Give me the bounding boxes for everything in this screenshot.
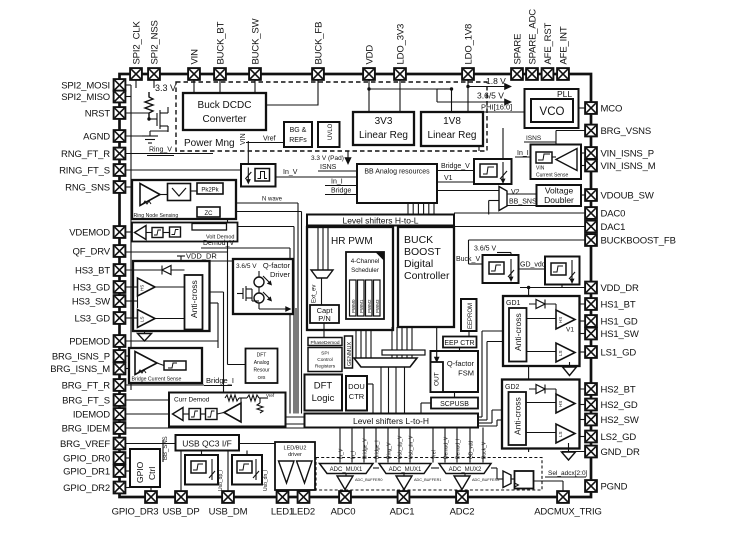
- svg-text:GPIO_DR1: GPIO_DR1: [63, 467, 110, 478]
- svg-text:BRG_VSNS: BRG_VSNS: [601, 126, 652, 137]
- svg-text:Usb_dp_V: Usb_dp_V: [398, 435, 404, 459]
- svg-text:HS1_SW: HS1_SW: [601, 329, 639, 340]
- svg-text:DFT: DFT: [314, 381, 333, 392]
- svg-text:GPIO_DR3: GPIO_DR3: [112, 507, 159, 518]
- svg-text:PWM3: PWM3: [375, 299, 380, 313]
- svg-text:DFT: DFT: [257, 353, 267, 359]
- svg-text:Bridge_I: Bridge_I: [206, 376, 234, 385]
- svg-text:PWM0: PWM0: [351, 299, 356, 313]
- svg-text:IDEMOD: IDEMOD: [73, 410, 110, 421]
- svg-text:SPI2_CLK: SPI2_CLK: [132, 21, 143, 65]
- svg-text:SPARE_ADC: SPARE_ADC: [528, 9, 539, 65]
- svg-text:AFE_INT: AFE_INT: [559, 26, 570, 64]
- svg-text:P/N: P/N: [318, 314, 331, 323]
- svg-text:Registers: Registers: [315, 364, 336, 370]
- svg-text:Buck_V: Buck_V: [456, 256, 480, 263]
- svg-text:MCO: MCO: [601, 104, 623, 115]
- svg-text:Bridge_I: Bridge_I: [375, 440, 381, 459]
- svg-text:GPIO_DR2: GPIO_DR2: [63, 483, 110, 494]
- svg-text:Q-factor: Q-factor: [263, 261, 291, 270]
- svg-text:3.6/5 V: 3.6/5 V: [474, 246, 497, 253]
- svg-text:RING_FT_S: RING_FT_S: [59, 166, 110, 177]
- svg-text:Voltage: Voltage: [545, 186, 574, 196]
- svg-text:Anti-cross: Anti-cross: [513, 313, 523, 351]
- svg-text:Pk2Pk: Pk2Pk: [201, 188, 219, 194]
- svg-text:HS2_SW: HS2_SW: [601, 415, 639, 426]
- svg-text:LED/BU2: LED/BU2: [284, 446, 307, 452]
- svg-text:PLL: PLL: [557, 89, 572, 99]
- svg-text:3V3: 3V3: [375, 116, 393, 127]
- svg-text:Anti-cross: Anti-cross: [189, 280, 199, 318]
- svg-text:Bridge Current Sense: Bridge Current Sense: [132, 377, 182, 383]
- svg-text:USB QC3 I/F: USB QC3 I/F: [182, 439, 232, 449]
- svg-text:DOU: DOU: [348, 382, 365, 391]
- svg-text:V1: V1: [566, 327, 574, 334]
- svg-text:LS2_GD: LS2_GD: [601, 432, 637, 443]
- svg-text:REFs: REFs: [289, 137, 307, 144]
- svg-text:BUCK_FB: BUCK_FB: [314, 22, 325, 65]
- svg-text:ADC_BUFFER0: ADC_BUFFER0: [355, 478, 382, 482]
- svg-text:BRG_ISNS_P: BRG_ISNS_P: [52, 352, 110, 363]
- svg-text:HS: HS: [558, 401, 563, 407]
- svg-text:ADC_BUFFER1: ADC_BUFFER1: [414, 478, 441, 482]
- svg-text:BUCK_SW: BUCK_SW: [251, 18, 262, 64]
- svg-text:LS: LS: [140, 316, 145, 322]
- svg-text:BUCKBOOST_FB: BUCKBOOST_FB: [601, 236, 676, 247]
- svg-text:driver: driver: [288, 452, 302, 458]
- svg-text:HS3_SW: HS3_SW: [72, 297, 110, 308]
- svg-text:Bridge_V: Bridge_V: [363, 438, 369, 459]
- svg-text:AFE_RST: AFE_RST: [543, 22, 554, 64]
- svg-text:VIN: VIN: [536, 166, 545, 172]
- svg-text:Scheduler: Scheduler: [351, 267, 379, 274]
- svg-text:BUCK: BUCK: [404, 234, 433, 246]
- svg-text:Curr Demod: Curr Demod: [174, 397, 210, 404]
- svg-text:PGND: PGND: [601, 482, 628, 493]
- svg-text:3.3 V (Pad): 3.3 V (Pad): [311, 155, 344, 162]
- svg-text:Demod_V: Demod_V: [203, 240, 234, 247]
- svg-text:Ctrl: Ctrl: [147, 467, 157, 480]
- svg-text:Buck_V: Buck_V: [482, 441, 488, 459]
- svg-text:BRG_FT_R: BRG_FT_R: [62, 381, 111, 392]
- svg-text:Controller: Controller: [404, 270, 450, 282]
- svg-text:VDEMOD: VDEMOD: [69, 228, 110, 239]
- svg-text:3.3 V: 3.3 V: [155, 83, 176, 93]
- svg-text:HS: HS: [558, 317, 563, 323]
- svg-text:ces: ces: [258, 375, 266, 381]
- svg-text:LDO_3V3: LDO_3V3: [396, 24, 407, 65]
- svg-text:SPI2_NSS: SPI2_NSS: [150, 20, 161, 64]
- svg-text:LS: LS: [558, 431, 563, 437]
- svg-text:4-Channel: 4-Channel: [351, 258, 380, 265]
- svg-text:Ring_V: Ring_V: [149, 147, 172, 154]
- svg-text:HS3_BT: HS3_BT: [75, 266, 110, 277]
- svg-text:Converter: Converter: [203, 114, 248, 125]
- svg-text:Ring_V: Ring_V: [387, 442, 393, 459]
- svg-text:Level shifters L-to-H: Level shifters L-to-H: [353, 416, 429, 426]
- svg-text:ADC0: ADC0: [331, 507, 356, 518]
- svg-text:1V8: 1V8: [443, 116, 461, 127]
- svg-text:In_I: In_I: [517, 150, 529, 157]
- svg-text:BRG_ISNS_M: BRG_ISNS_M: [50, 364, 110, 375]
- svg-text:FSM: FSM: [458, 369, 474, 378]
- svg-text:Demod_I: Demod_I: [456, 439, 462, 459]
- svg-text:EEP CTR: EEP CTR: [444, 340, 474, 347]
- svg-text:Ring Node Sensing: Ring Node Sensing: [134, 213, 179, 219]
- svg-text:USB_DM: USB_DM: [209, 507, 248, 518]
- svg-text:PhaseDemod: PhaseDemod: [310, 340, 339, 346]
- svg-text:Usb_dn_I: Usb_dn_I: [263, 470, 269, 491]
- svg-text:3.6/5 V: 3.6/5 V: [236, 263, 257, 270]
- svg-text:HS1_GD: HS1_GD: [601, 317, 638, 328]
- svg-text:LS1_GD: LS1_GD: [601, 348, 637, 359]
- svg-text:BUCK_BT: BUCK_BT: [216, 21, 227, 64]
- svg-text:HS2_GD: HS2_GD: [601, 400, 638, 411]
- svg-text:GENMUX: GENMUX: [347, 342, 353, 366]
- svg-text:RNG_FT_R: RNG_FT_R: [61, 149, 110, 160]
- svg-text:VDD_DR: VDD_DR: [601, 283, 639, 294]
- svg-text:GD_vdd: GD_vdd: [469, 440, 475, 459]
- svg-text:SPI: SPI: [321, 351, 329, 357]
- svg-text:LS3_GD: LS3_GD: [74, 314, 110, 325]
- svg-text:ADC_MUX2: ADC_MUX2: [449, 467, 482, 473]
- svg-text:N wave: N wave: [262, 197, 283, 203]
- svg-text:Driver: Driver: [270, 270, 291, 279]
- svg-text:LS: LS: [558, 350, 563, 356]
- svg-text:BOOST: BOOST: [404, 246, 441, 258]
- svg-text:Control: Control: [317, 357, 332, 363]
- svg-text:SPI2_MISO: SPI2_MISO: [61, 92, 110, 103]
- svg-text:HS: HS: [140, 285, 145, 291]
- svg-text:USB_DP: USB_DP: [162, 507, 199, 518]
- svg-text:Power Mng: Power Mng: [184, 138, 235, 149]
- svg-text:GD1: GD1: [506, 300, 521, 307]
- svg-text:DAC1: DAC1: [601, 222, 626, 233]
- svg-text:Buck DCDC: Buck DCDC: [198, 100, 252, 111]
- svg-text:Digital: Digital: [404, 258, 433, 270]
- svg-text:Current Sense: Current Sense: [536, 173, 568, 179]
- svg-text:Ext_ev: Ext_ev: [312, 285, 318, 303]
- svg-text:Doubler: Doubler: [544, 195, 574, 205]
- svg-text:GPIO_DR0: GPIO_DR0: [63, 454, 110, 465]
- svg-text:LED1: LED1: [271, 507, 294, 518]
- svg-text:Vref: Vref: [263, 136, 276, 143]
- svg-text:BRG_FT_S: BRG_FT_S: [62, 396, 110, 407]
- svg-text:PWM1: PWM1: [359, 299, 364, 313]
- svg-text:EEPROM: EEPROM: [468, 303, 474, 329]
- svg-text:Bridge_V: Bridge_V: [441, 163, 470, 170]
- svg-text:GPIO: GPIO: [135, 461, 145, 483]
- svg-text:3.6/5 V: 3.6/5 V: [477, 91, 504, 101]
- svg-text:PWM2: PWM2: [367, 299, 372, 313]
- svg-text:VCO: VCO: [540, 106, 565, 118]
- svg-text:ADC_MUX1: ADC_MUX1: [330, 467, 363, 473]
- svg-text:HS1_BT: HS1_BT: [601, 300, 636, 311]
- svg-text:Linear Reg: Linear Reg: [359, 130, 408, 141]
- svg-text:Sel_adcx[2:0]: Sel_adcx[2:0]: [548, 470, 588, 477]
- svg-text:RNG_SNS: RNG_SNS: [65, 183, 110, 194]
- svg-text:ADC_MUX1: ADC_MUX1: [389, 467, 422, 473]
- svg-text:Vref: Vref: [266, 393, 275, 398]
- svg-text:V1: V1: [444, 175, 453, 182]
- svg-text:SPI2_MOSI: SPI2_MOSI: [61, 81, 110, 92]
- svg-text:BRG_IDEM: BRG_IDEM: [62, 424, 111, 435]
- svg-text:LDO_1V8: LDO_1V8: [464, 24, 475, 65]
- svg-text:VDD_DR: VDD_DR: [186, 252, 217, 261]
- svg-text:LED2: LED2: [292, 507, 315, 518]
- svg-text:BB Analog resources: BB Analog resources: [364, 169, 430, 176]
- svg-text:VIN_ISNS_P: VIN_ISNS_P: [601, 149, 654, 160]
- svg-text:AGND: AGND: [83, 132, 110, 143]
- svg-text:GND_DR: GND_DR: [601, 447, 641, 458]
- svg-text:ISNS: ISNS: [526, 135, 542, 142]
- svg-text:ZC: ZC: [205, 211, 214, 217]
- svg-text:ADC_BUFFER2: ADC_BUFFER2: [472, 478, 499, 482]
- svg-text:QF_DRV: QF_DRV: [73, 247, 111, 258]
- svg-text:HS3_GD: HS3_GD: [73, 283, 110, 294]
- svg-text:OUT: OUT: [434, 372, 441, 386]
- svg-text:Linear Reg: Linear Reg: [428, 130, 477, 141]
- svg-text:VIN: VIN: [240, 133, 247, 145]
- svg-text:In_I: In_I: [331, 179, 343, 186]
- svg-text:1.8 V: 1.8 V: [486, 76, 506, 86]
- svg-text:Q-factor: Q-factor: [447, 359, 475, 368]
- svg-text:GD2: GD2: [505, 384, 520, 391]
- svg-text:In_V: In_V: [283, 169, 298, 176]
- svg-text:NRST: NRST: [85, 109, 111, 120]
- svg-text:BB_SNS: BB_SNS: [509, 199, 537, 206]
- svg-text:SCPUSB: SCPUSB: [440, 401, 469, 408]
- svg-text:VDD: VDD: [365, 45, 376, 65]
- svg-text:BB_SNS: BB_SNS: [163, 436, 169, 460]
- svg-text:GD_vdd: GD_vdd: [520, 262, 546, 269]
- svg-text:Usb_dp_I: Usb_dp_I: [218, 470, 224, 491]
- svg-text:ISNS: ISNS: [320, 164, 337, 171]
- svg-text:DAC0: DAC0: [601, 209, 626, 220]
- svg-text:Analog: Analog: [254, 360, 270, 366]
- svg-text:Bridge: Bridge: [331, 188, 351, 195]
- svg-text:ADC1: ADC1: [390, 507, 415, 518]
- svg-text:HS2_BT: HS2_BT: [601, 385, 636, 396]
- svg-text:Resour: Resour: [253, 368, 269, 374]
- svg-text:BG &: BG &: [290, 127, 307, 134]
- svg-text:Demod_V: Demod_V: [444, 436, 450, 459]
- svg-text:Usb_dn_V: Usb_dn_V: [409, 435, 415, 459]
- svg-text:VIN_ISNS_M: VIN_ISNS_M: [601, 161, 656, 172]
- svg-text:VIN: VIN: [190, 49, 201, 65]
- svg-text:SPARE: SPARE: [513, 34, 524, 65]
- svg-text:Anti-cross: Anti-cross: [513, 397, 523, 435]
- svg-text:ADC2: ADC2: [450, 507, 475, 518]
- svg-text:ADCMUX_TRIG: ADCMUX_TRIG: [534, 507, 602, 518]
- svg-text:Logic: Logic: [312, 393, 335, 404]
- svg-text:VDOUB_SW: VDOUB_SW: [601, 191, 654, 202]
- svg-text:CTR: CTR: [349, 392, 365, 401]
- svg-text:UVLO: UVLO: [328, 123, 334, 140]
- svg-text:PHI[16:0]: PHI[16:0]: [481, 103, 512, 112]
- svg-text:BRG_VREF: BRG_VREF: [60, 439, 110, 450]
- svg-text:Level shifters H-to-L: Level shifters H-to-L: [342, 216, 418, 226]
- svg-text:PDEMOD: PDEMOD: [69, 337, 110, 348]
- svg-text:HR PWM: HR PWM: [331, 236, 373, 247]
- svg-text:V2: V2: [511, 189, 520, 196]
